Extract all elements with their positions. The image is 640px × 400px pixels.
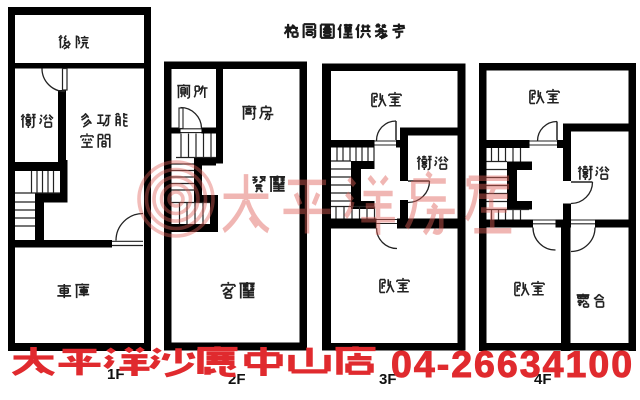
svg-text:04-26634100: 04-26634100 [391, 343, 634, 385]
